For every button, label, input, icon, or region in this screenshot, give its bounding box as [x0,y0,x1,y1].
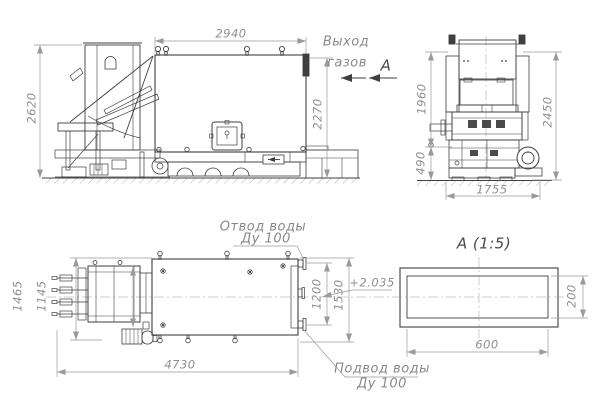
dim-side-height-left: 2620 [26,92,38,123]
gas-outlet-label-line2: газов [327,57,367,70]
dim-front-width: 1755 [476,184,507,196]
dim-plan-left-inner: 1145 [36,280,48,311]
dim-section-width: 600 [475,339,498,351]
water-supply-label-line2: Ду 100 [357,378,407,391]
dim-section-height: 200 [566,284,578,307]
water-supply-label-line1: Подвод воды [334,363,430,376]
dim-side-height-right: 2270 [312,98,324,129]
section-level-mark: +2.035 [349,277,395,289]
section-view-title: А (1:5) [457,237,511,252]
drawing-canvas [0,0,600,400]
water-outlet-label-line2: Ду 100 [241,233,291,246]
drawing-sheet: 2940 2620 2270 Выход газов А 1960 2450 4… [0,0,600,400]
front-view-linework [417,35,552,186]
dim-side-width: 2940 [215,28,246,40]
dim-plan-right-outer: 1530 [333,279,345,310]
dim-front-total: 2450 [542,96,554,127]
dim-plan-left-outer: 1465 [12,280,24,311]
plan-view-linework [46,251,312,344]
dim-front-upper: 1960 [416,83,428,114]
dim-plan-right-inner: 1200 [311,278,323,309]
gas-outlet-label-line1: Выход [323,36,369,49]
section-view-linework [320,257,568,338]
view-a-marker: А [381,59,392,74]
dimension-lines [34,37,588,377]
dim-front-base: 490 [415,151,427,174]
dim-plan-length: 4730 [164,359,195,371]
